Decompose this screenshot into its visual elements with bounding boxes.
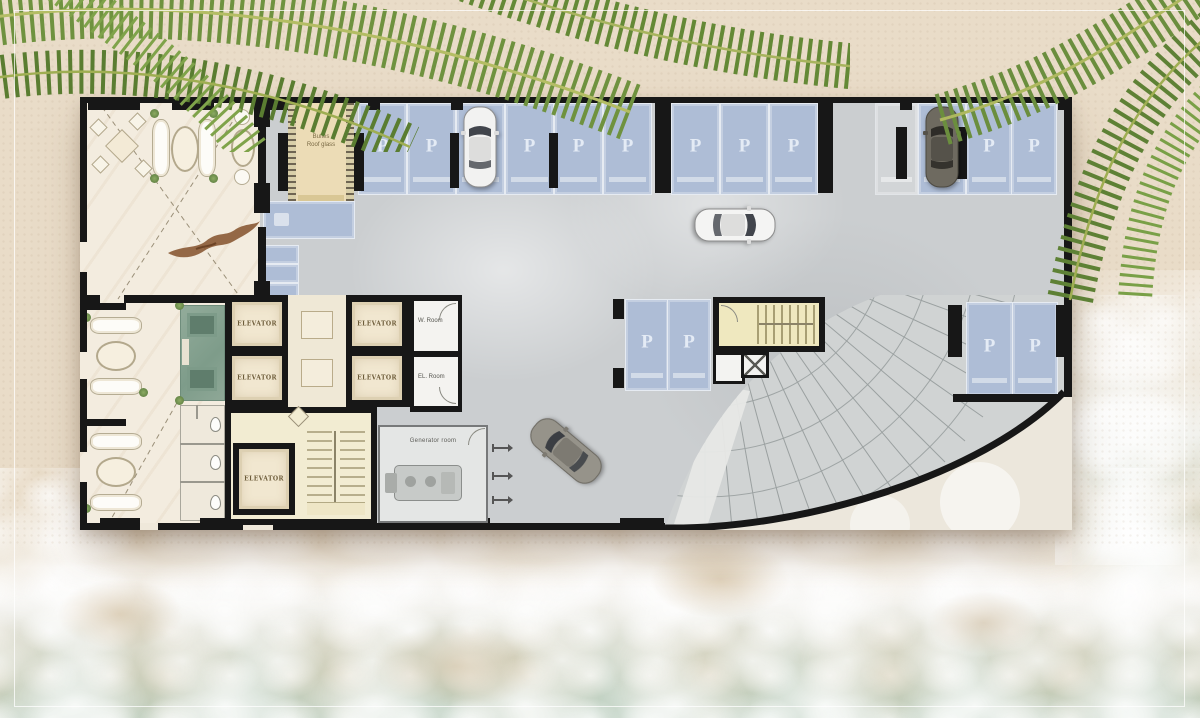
- beach-floorplan-scene: { "scene": { "frame_color": "#ffffff" },…: [0, 0, 1200, 718]
- photo-frame-border: [14, 10, 1185, 707]
